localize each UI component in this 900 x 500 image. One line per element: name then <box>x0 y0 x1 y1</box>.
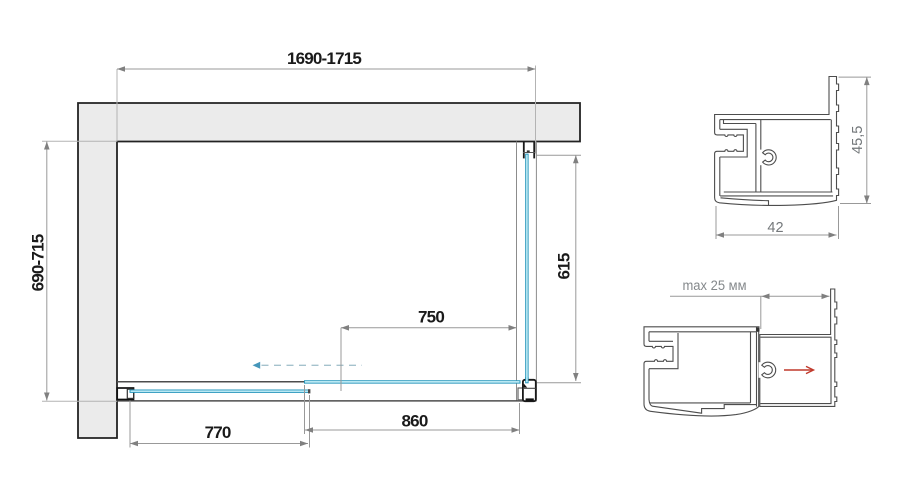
svg-text:max 25 мм: max 25 мм <box>683 278 747 293</box>
svg-text:1690-1715: 1690-1715 <box>287 49 361 68</box>
svg-text:45,5: 45,5 <box>850 126 866 154</box>
svg-text:750: 750 <box>418 308 444 327</box>
svg-text:690-715: 690-715 <box>29 234 48 291</box>
svg-text:770: 770 <box>205 423 231 442</box>
svg-text:615: 615 <box>555 253 574 279</box>
svg-text:860: 860 <box>402 411 428 430</box>
svg-text:42: 42 <box>767 220 783 236</box>
